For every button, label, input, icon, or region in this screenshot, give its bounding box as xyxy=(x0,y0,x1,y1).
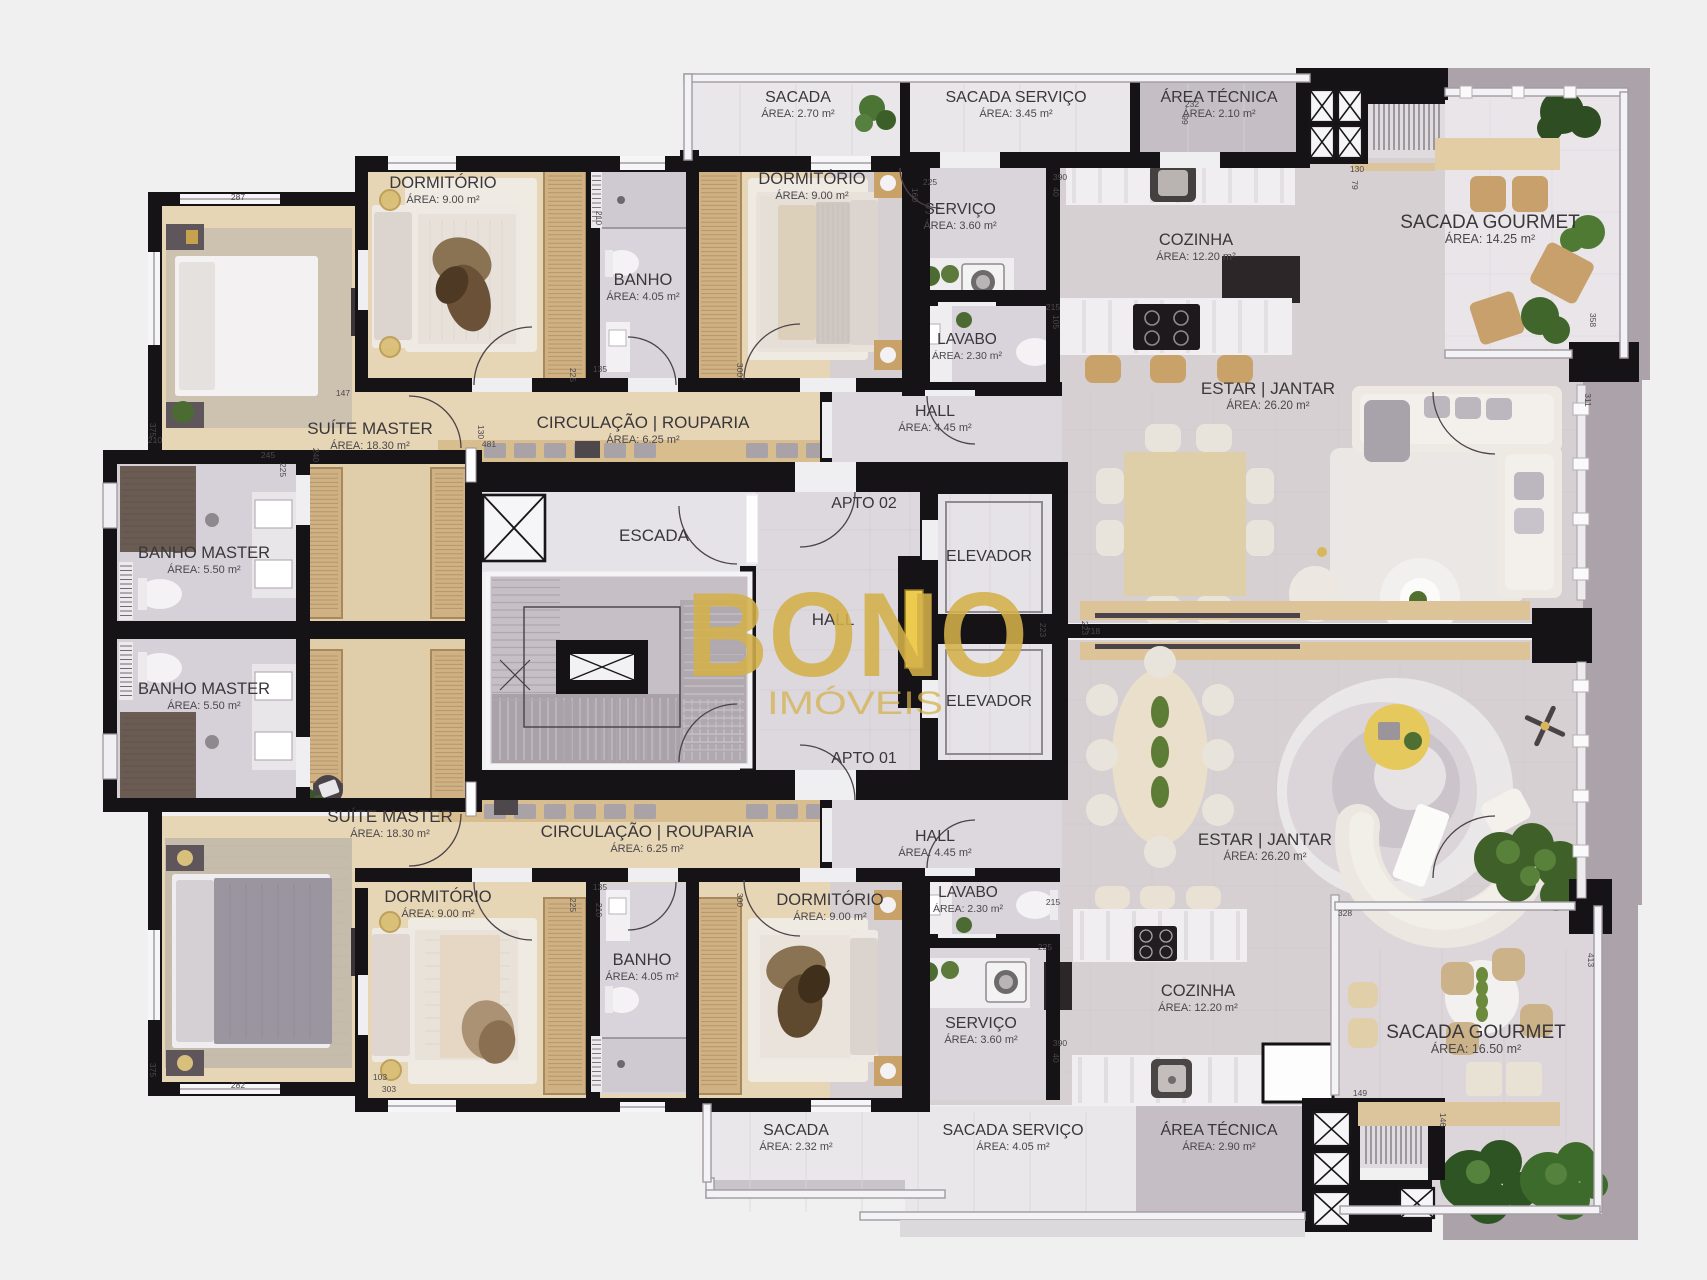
svg-text:311: 311 xyxy=(1583,393,1593,407)
svg-text:160: 160 xyxy=(910,188,920,202)
svg-text:ESTAR | JANTAR: ESTAR | JANTAR xyxy=(1201,379,1335,398)
svg-text:390: 390 xyxy=(1053,172,1067,182)
svg-text:210: 210 xyxy=(594,903,604,917)
svg-text:99: 99 xyxy=(1180,115,1190,125)
svg-text:40: 40 xyxy=(1051,1053,1061,1063)
svg-text:ÁREA: 5.50 m²: ÁREA: 5.50 m² xyxy=(167,563,241,576)
svg-text:ÁREA: 2.30 m²: ÁREA: 2.30 m² xyxy=(932,349,1003,362)
svg-text:300: 300 xyxy=(735,363,745,377)
svg-text:79: 79 xyxy=(1350,180,1360,190)
svg-text:SACADA GOURMET: SACADA GOURMET xyxy=(1386,1022,1566,1043)
svg-text:ÁREA: 3.45 m²: ÁREA: 3.45 m² xyxy=(979,107,1053,120)
svg-text:ÁREA: 2.30 m²: ÁREA: 2.30 m² xyxy=(933,902,1004,915)
svg-text:ESCADA: ESCADA xyxy=(619,526,690,545)
svg-text:ÁREA: 18.30 m²: ÁREA: 18.30 m² xyxy=(330,439,410,452)
svg-text:147: 147 xyxy=(336,388,350,398)
svg-text:APTO 01: APTO 01 xyxy=(831,750,897,767)
svg-text:ELEVADOR: ELEVADOR xyxy=(946,548,1032,565)
svg-text:SACADA SERVIÇO: SACADA SERVIÇO xyxy=(945,89,1086,106)
svg-text:481: 481 xyxy=(482,439,496,449)
svg-text:375: 375 xyxy=(148,1063,158,1077)
svg-text:COZINHA: COZINHA xyxy=(1159,231,1233,249)
svg-text:CIRCULAÇÃO | ROUPARIA: CIRCULAÇÃO | ROUPARIA xyxy=(541,822,755,841)
svg-text:ÁREA: 4.45 m²: ÁREA: 4.45 m² xyxy=(898,421,972,434)
svg-text:BANHO MASTER: BANHO MASTER xyxy=(138,680,270,698)
svg-text:SERVIÇO: SERVIÇO xyxy=(924,201,996,218)
svg-text:COZINHA: COZINHA xyxy=(1161,982,1235,1000)
svg-text:HALL: HALL xyxy=(915,828,955,845)
svg-text:IMÓVEIS: IMÓVEIS xyxy=(767,685,943,721)
svg-text:215: 215 xyxy=(1046,897,1060,907)
svg-text:BANHO MASTER: BANHO MASTER xyxy=(138,544,270,562)
svg-text:40: 40 xyxy=(1051,187,1061,197)
svg-text:300: 300 xyxy=(735,893,745,907)
svg-text:LAVABO: LAVABO xyxy=(937,331,997,348)
svg-text:SACADA SERVIÇO: SACADA SERVIÇO xyxy=(942,1122,1083,1139)
svg-text:ÁREA: 4.05 m²: ÁREA: 4.05 m² xyxy=(605,970,679,983)
svg-text:ÁREA: 18.30 m²: ÁREA: 18.30 m² xyxy=(350,827,430,840)
svg-text:ÁREA: 9.00 m²: ÁREA: 9.00 m² xyxy=(793,910,867,923)
svg-text:215: 215 xyxy=(1046,302,1060,312)
svg-text:ÁREA: 6.25 m²: ÁREA: 6.25 m² xyxy=(610,842,684,855)
svg-text:BONO: BONO xyxy=(686,568,1028,702)
svg-text:390: 390 xyxy=(1053,1038,1067,1048)
svg-text:ÁREA: 3.60 m²: ÁREA: 3.60 m² xyxy=(923,219,997,232)
svg-text:ÁREA: 4.05 m²: ÁREA: 4.05 m² xyxy=(976,1140,1050,1153)
svg-text:225: 225 xyxy=(1038,942,1052,952)
svg-text:DORMITÓRIO: DORMITÓRIO xyxy=(384,887,491,906)
svg-text:SACADA GOURMET: SACADA GOURMET xyxy=(1400,212,1580,233)
svg-text:135: 135 xyxy=(593,882,607,892)
svg-text:ÁREA: 12.20 m²: ÁREA: 12.20 m² xyxy=(1156,250,1236,263)
svg-text:245: 245 xyxy=(261,450,275,460)
svg-text:ÁREA: 3.60 m²: ÁREA: 3.60 m² xyxy=(944,1033,1018,1046)
svg-text:LAVABO: LAVABO xyxy=(938,884,998,901)
svg-text:225: 225 xyxy=(568,898,578,912)
svg-text:149: 149 xyxy=(1353,1088,1367,1098)
svg-text:ÁREA: 2.90 m²: ÁREA: 2.90 m² xyxy=(1182,1140,1256,1153)
svg-text:287: 287 xyxy=(231,192,245,202)
svg-text:ÁREA: 26.20 m²: ÁREA: 26.20 m² xyxy=(1226,399,1309,412)
svg-text:130: 130 xyxy=(1350,164,1364,174)
svg-text:225: 225 xyxy=(568,368,578,382)
svg-text:ÁREA TÉCNICA: ÁREA TÉCNICA xyxy=(1160,1120,1277,1139)
svg-text:358: 358 xyxy=(1588,313,1598,327)
svg-text:ESTAR | JANTAR: ESTAR | JANTAR xyxy=(1198,830,1332,849)
svg-text:ÁREA: 16.50 m²: ÁREA: 16.50 m² xyxy=(1431,1041,1521,1056)
svg-text:282: 282 xyxy=(231,1080,245,1090)
svg-text:146: 146 xyxy=(1438,1113,1448,1127)
svg-text:ÁREA: 9.00 m²: ÁREA: 9.00 m² xyxy=(401,907,475,920)
svg-text:240: 240 xyxy=(311,448,321,462)
svg-text:232: 232 xyxy=(1185,99,1199,109)
svg-text:223: 223 xyxy=(1038,623,1048,637)
svg-text:CIRCULAÇÃO | ROUPARIA: CIRCULAÇÃO | ROUPARIA xyxy=(537,413,751,432)
svg-text:BANHO: BANHO xyxy=(614,271,673,289)
svg-text:225: 225 xyxy=(278,463,288,477)
svg-text:225: 225 xyxy=(923,177,937,187)
svg-text:ÁREA: 12.20 m²: ÁREA: 12.20 m² xyxy=(1158,1001,1238,1014)
svg-text:ÁREA: 6.25 m²: ÁREA: 6.25 m² xyxy=(606,433,680,446)
svg-text:DORMITÓRIO: DORMITÓRIO xyxy=(776,890,883,909)
svg-text:HALL: HALL xyxy=(915,403,955,420)
svg-text:ÁREA: 9.00 m²: ÁREA: 9.00 m² xyxy=(775,189,849,202)
svg-text:135: 135 xyxy=(593,364,607,374)
svg-text:DORMITÓRIO: DORMITÓRIO xyxy=(758,169,865,188)
svg-text:ÁREA: 4.05 m²: ÁREA: 4.05 m² xyxy=(606,290,680,303)
svg-text:APTO 02: APTO 02 xyxy=(831,495,897,512)
svg-text:ÁREA: 5.50 m²: ÁREA: 5.50 m² xyxy=(167,699,241,712)
svg-text:DORMITÓRIO: DORMITÓRIO xyxy=(389,173,496,192)
svg-text:413: 413 xyxy=(1586,953,1596,967)
svg-text:303: 303 xyxy=(382,1084,396,1094)
svg-text:SUÍTE MASTER: SUÍTE MASTER xyxy=(327,807,453,826)
svg-text:210: 210 xyxy=(594,211,604,225)
svg-text:SUÍTE MASTER: SUÍTE MASTER xyxy=(307,419,433,438)
svg-text:103: 103 xyxy=(373,1072,387,1082)
svg-text:ÁREA: 4.45 m²: ÁREA: 4.45 m² xyxy=(898,846,972,859)
svg-text:105: 105 xyxy=(1051,315,1061,329)
svg-text:ÁREA: 26.20 m²: ÁREA: 26.20 m² xyxy=(1223,850,1306,863)
svg-text:130: 130 xyxy=(476,425,486,439)
svg-text:ÁREA: 2.70 m²: ÁREA: 2.70 m² xyxy=(761,107,835,120)
svg-text:328: 328 xyxy=(1338,908,1352,918)
svg-text:SERVIÇO: SERVIÇO xyxy=(945,1015,1017,1032)
svg-text:223: 223 xyxy=(1080,621,1090,635)
svg-text:BANHO: BANHO xyxy=(613,951,672,969)
svg-text:ÁREA: 14.25 m²: ÁREA: 14.25 m² xyxy=(1445,231,1535,246)
svg-text:ÁREA: 9.00 m²: ÁREA: 9.00 m² xyxy=(406,193,480,206)
svg-text:375: 375 xyxy=(148,423,158,437)
svg-text:ÁREA: 2.32 m²: ÁREA: 2.32 m² xyxy=(759,1140,833,1153)
svg-text:SACADA: SACADA xyxy=(763,1122,829,1139)
svg-text:SACADA: SACADA xyxy=(765,89,831,106)
svg-text:ÁREA TÉCNICA: ÁREA TÉCNICA xyxy=(1160,87,1277,106)
